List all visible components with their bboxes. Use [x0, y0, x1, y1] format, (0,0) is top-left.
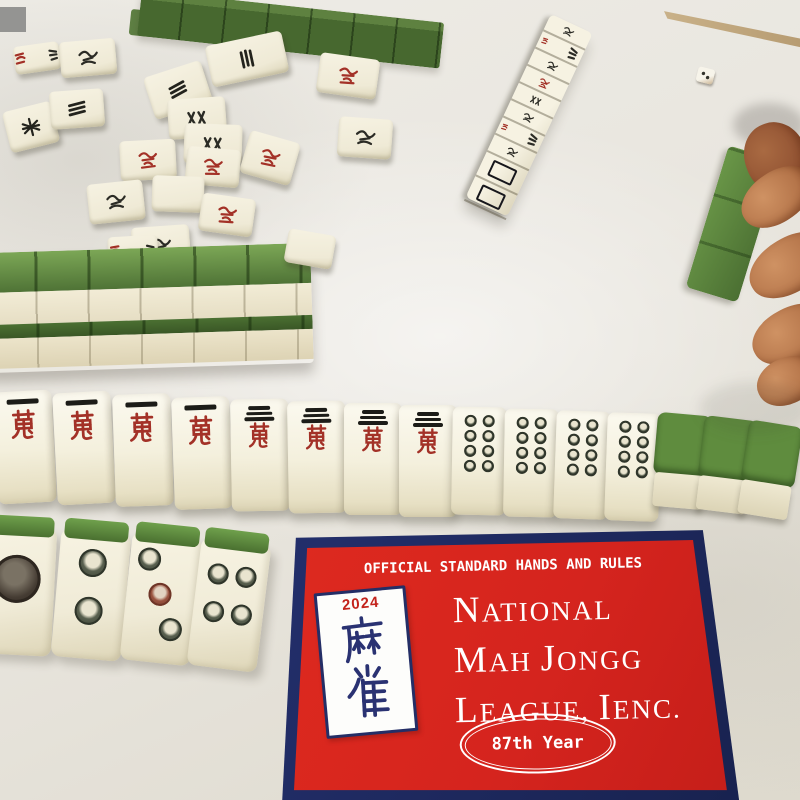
- glyph-one: [66, 399, 98, 406]
- dot-ring: [636, 451, 648, 463]
- dot-ring: [207, 562, 230, 585]
- tile-face: [235, 404, 284, 469]
- tile-green-edge: [135, 521, 201, 548]
- hanzi-ma-icon: [336, 610, 392, 668]
- dot-ring: [535, 417, 547, 429]
- glyph-eight-dots: [464, 412, 495, 473]
- dot-ring: [586, 434, 598, 446]
- tile-face: [349, 408, 397, 472]
- gray-corner-patch: [0, 7, 26, 32]
- dot-ring: [534, 432, 546, 444]
- card-title-segment: ONGG: [557, 644, 644, 676]
- dot-ring: [586, 419, 598, 431]
- dot-ring: [516, 432, 528, 444]
- card-title-segment: ATIONAL: [481, 595, 613, 628]
- table-edge-wood: [620, 0, 800, 64]
- exposed-tile-1-crak: [112, 393, 174, 507]
- tile-face: [0, 395, 50, 461]
- leaning-tile-2-dot: [51, 528, 132, 662]
- scattered-tile: [49, 88, 106, 130]
- glyph-one: [184, 404, 216, 410]
- dot-ring: [464, 430, 476, 442]
- dot-ring: [234, 566, 257, 589]
- tile-face: [610, 417, 656, 482]
- dot-ring: [483, 415, 495, 427]
- dot-ring: [0, 554, 42, 604]
- dot-ring: [465, 415, 477, 427]
- dot-ring: [202, 600, 225, 623]
- dot-ring: [137, 546, 162, 571]
- white-dragon-frame: [476, 184, 507, 210]
- card-content: OFFICIAL STANDARD HANDS AND RULES 2024: [275, 519, 751, 800]
- scattered-tile: [151, 175, 204, 213]
- dot-ring: [585, 449, 597, 461]
- glyph-eight-dots: [618, 418, 650, 479]
- card-title-segment: M: [454, 640, 490, 682]
- exposed-tile-8-dot: [503, 409, 559, 518]
- glyph-three: [360, 416, 386, 420]
- dot-ring: [464, 445, 476, 457]
- dot-ring: [568, 433, 580, 445]
- glyph-three: [415, 418, 441, 422]
- nmjl-card: OFFICIAL STANDARD HANDS AND RULES 2024: [278, 524, 748, 800]
- exposed-tile-3-crak: [230, 399, 290, 512]
- tile-green-edge: [64, 517, 129, 543]
- glyph-three: [248, 406, 270, 410]
- dot-ring: [568, 419, 580, 431]
- dot-ring: [618, 450, 630, 462]
- leaning-tile-4-dot: [186, 537, 271, 673]
- scattered-tile: [59, 38, 118, 79]
- tile-face: [559, 415, 605, 480]
- white-dragon-frame: [487, 160, 518, 186]
- card-title: NATIONALMAH JONGGLEAGUE, IENC.: [452, 583, 765, 739]
- dot-ring: [618, 465, 630, 477]
- dot-ring: [147, 582, 172, 607]
- dot-ring: [482, 430, 494, 442]
- dot-ring: [567, 448, 579, 460]
- dot-ring: [230, 603, 253, 626]
- tile-face: [117, 398, 167, 464]
- glyph-three: [417, 412, 439, 416]
- glyph-three: [303, 413, 329, 417]
- scattered-tile: [316, 52, 381, 100]
- dot-ring: [516, 462, 528, 474]
- glyph-eight-dots: [567, 416, 599, 477]
- dot-ring: [567, 463, 579, 475]
- far-wall-green-tiles: [137, 0, 444, 69]
- dot-ring: [636, 466, 648, 478]
- scattered-tile: [12, 41, 61, 75]
- exposed-tile-3-crak: [287, 401, 347, 514]
- exposed-tile-1-crak: [171, 396, 233, 510]
- tile-face: [292, 406, 341, 471]
- leaning-tile-1-dot: [0, 525, 57, 656]
- tile-face: [457, 412, 502, 477]
- dot-ring: [517, 417, 529, 429]
- dot-ring: [78, 548, 108, 578]
- dot-ring: [482, 460, 494, 472]
- exposed-tile-1-crak: [0, 390, 57, 505]
- die: [695, 66, 715, 85]
- tile-face: [57, 396, 108, 462]
- exposed-tile-3-crak: [399, 405, 457, 517]
- mahjong-table-photo: OFFICIAL STANDARD HANDS AND RULES 2024: [0, 0, 800, 800]
- dot-ring: [482, 445, 494, 457]
- card-title-segment: I: [598, 687, 613, 728]
- tile-face: [176, 401, 226, 467]
- glyph-eight-dots: [516, 414, 547, 475]
- exposed-tile-8-dot: [451, 407, 507, 516]
- dot-ring: [619, 421, 631, 433]
- dot-ring: [534, 447, 546, 459]
- tile-face: [404, 410, 452, 474]
- dot-ring: [619, 435, 631, 447]
- card-title-line: MAH JONGG: [454, 633, 765, 689]
- card-title-segment: AH: [489, 646, 541, 677]
- glyph-three: [246, 411, 272, 415]
- card-banner-text: OFFICIAL STANDARD HANDS AND RULES: [350, 555, 656, 577]
- card-title-line: NATIONAL: [452, 583, 763, 639]
- tile-base: [737, 479, 792, 520]
- dot-ring: [637, 421, 649, 433]
- year-badge-text: 87th Year: [491, 733, 584, 755]
- scattered-tile: [337, 116, 394, 160]
- tile-face: [509, 414, 554, 479]
- dot-ring: [158, 617, 183, 642]
- scattered-tile: [198, 192, 257, 237]
- tile-green-edge: [204, 527, 270, 555]
- tile-green-edge: [0, 514, 55, 537]
- dot-ring: [585, 464, 597, 476]
- exposed-tile-3-crak: [344, 403, 402, 515]
- card-title-segment: ENC.: [613, 693, 682, 724]
- card-title-segment: N: [452, 590, 482, 632]
- exposed-tile-8-dot: [553, 410, 611, 520]
- dot-ring: [73, 596, 103, 626]
- dot-ring: [637, 436, 649, 448]
- card-title-segment: J: [540, 638, 557, 679]
- scattered-tile: [86, 179, 146, 225]
- scattered-tile: [239, 130, 301, 187]
- standing-tile-column: [466, 14, 593, 217]
- glyph-one: [125, 401, 157, 407]
- exposed-tile-1-crak: [52, 391, 116, 506]
- glyph-one: [7, 398, 39, 405]
- dot-ring: [464, 460, 476, 472]
- hand-shadow: [700, 382, 800, 434]
- hanzi-que-icon: [341, 662, 396, 723]
- card-logo-box: 2024: [314, 585, 419, 739]
- glyph-three: [305, 408, 327, 412]
- glyph-three: [362, 410, 384, 414]
- dot-ring: [516, 447, 528, 459]
- player-wall: [0, 243, 314, 373]
- dot-ring: [534, 462, 546, 474]
